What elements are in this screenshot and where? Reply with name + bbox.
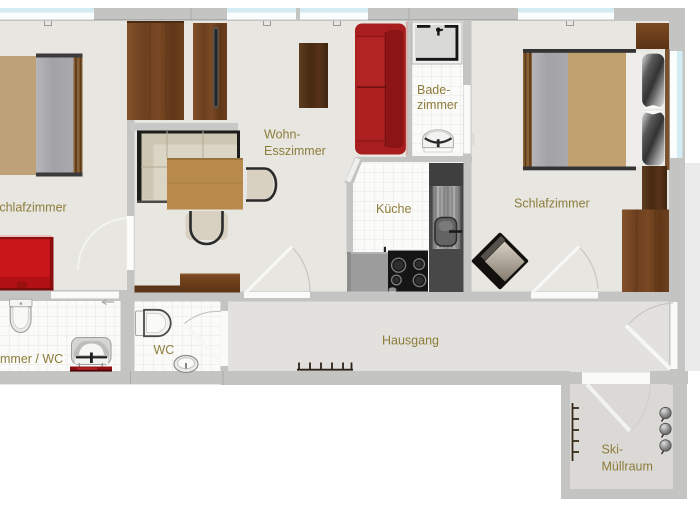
svg-text:Esszimmer: Esszimmer xyxy=(264,144,326,158)
svg-text:Schlafzimmer: Schlafzimmer xyxy=(514,197,590,211)
svg-text:Müllraum: Müllraum xyxy=(602,460,653,474)
svg-text:Ski-: Ski- xyxy=(602,443,624,457)
svg-text:Küche: Küche xyxy=(376,202,411,216)
svg-text:mmer / WC: mmer / WC xyxy=(0,352,63,366)
svg-text:Bade-: Bade- xyxy=(417,83,450,97)
svg-text:Hausgang: Hausgang xyxy=(382,334,439,348)
svg-text:Wohn-: Wohn- xyxy=(264,128,301,142)
svg-text:zimmer: zimmer xyxy=(417,98,458,112)
svg-text:WC: WC xyxy=(154,343,175,357)
svg-text:Schlafzimmer: Schlafzimmer xyxy=(0,201,67,215)
